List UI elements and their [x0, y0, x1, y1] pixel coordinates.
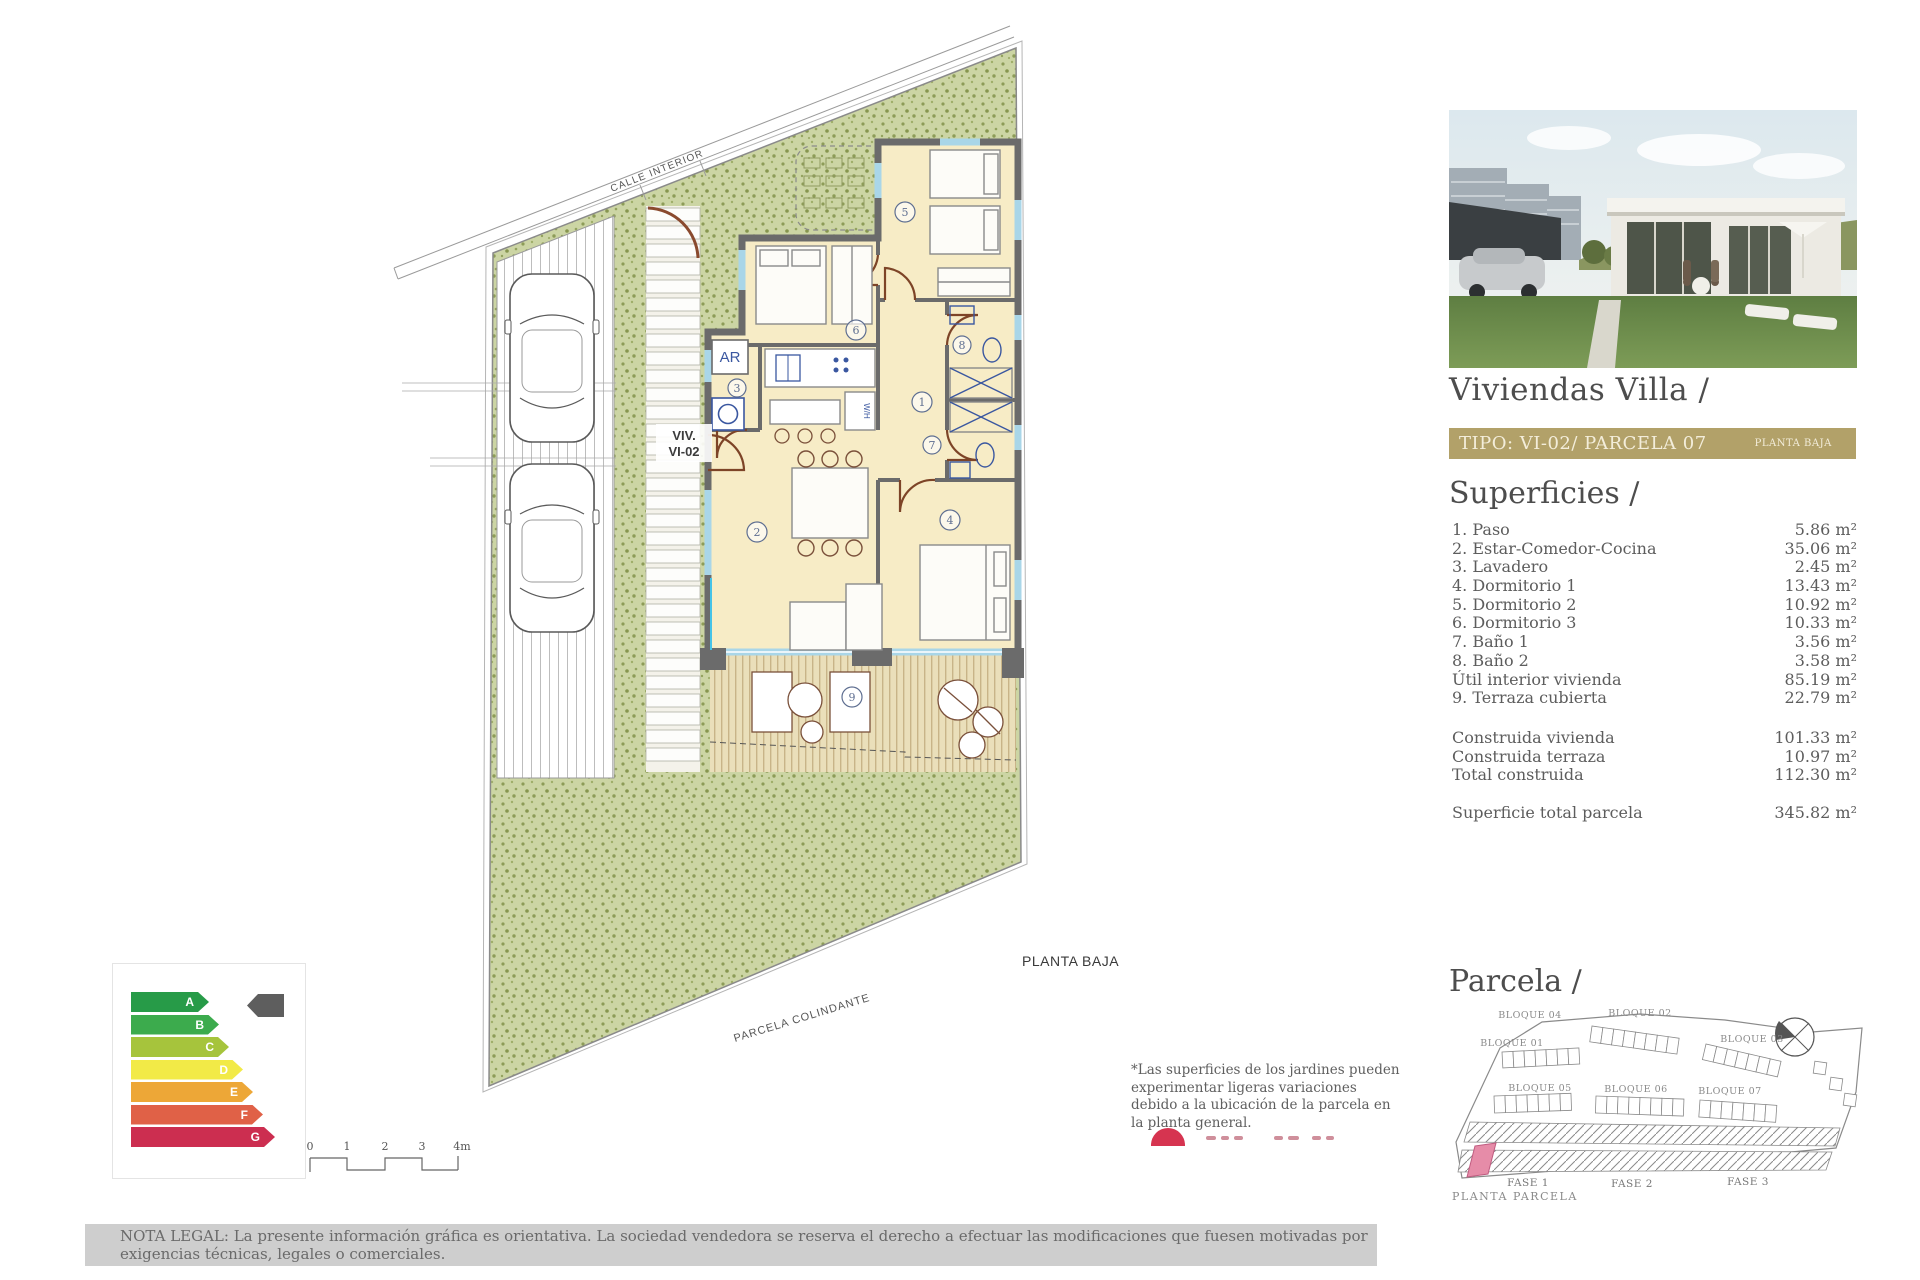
energy-rating-chart: A B C D E F G	[112, 963, 306, 1179]
bedroom3-furniture	[756, 246, 872, 324]
type-bar-floor: PLANTA BAJA	[1755, 438, 1832, 449]
site-plan: BLOQUE 04 BLOQUE 02 BLOQUE 01 BLOQUE 03 …	[1456, 1008, 1862, 1190]
svg-text:3: 3	[419, 1140, 426, 1153]
ar-label: AR	[720, 349, 741, 366]
svg-text:3: 3	[734, 382, 741, 395]
wh-label: W/H	[862, 403, 871, 419]
parcela-heading: Parcela /	[1449, 964, 1582, 999]
energy-grade-a: A	[131, 992, 209, 1012]
planta-parcela-caption: PLANTA PARCELA	[1452, 1190, 1578, 1203]
table-row: 7. Baño 13.56 m²	[1452, 633, 1857, 652]
villa-photo	[1449, 110, 1857, 368]
energy-grade-b: B	[131, 1015, 219, 1035]
table-row: Superficie total parcela345.82 m²	[1452, 804, 1857, 823]
fase-3-label: FASE 3	[1727, 1176, 1769, 1188]
svg-text:VIV.: VIV.	[672, 428, 695, 443]
jardines-note: *Las superficies de los jardines pueden …	[1131, 1062, 1403, 1132]
bloque-01-label: BLOQUE 01	[1480, 1038, 1543, 1049]
parcel-total-row: Superficie total parcela345.82 m²	[1452, 804, 1857, 823]
table-row: Total construida112.30 m²	[1452, 766, 1857, 785]
energy-grade-c: C	[131, 1037, 229, 1057]
svg-text:9: 9	[849, 691, 856, 704]
plan-sheet: CALLE INTERIOR	[0, 0, 1920, 1280]
table-row: Construida vivienda101.33 m²	[1452, 729, 1857, 748]
type-bar-label: TIPO: VI-02/ PARCELA 07	[1459, 433, 1707, 454]
table-row: 4. Dormitorio 113.43 m²	[1452, 577, 1857, 596]
energy-grade-g: G	[131, 1127, 275, 1147]
table-row: 1. Paso5.86 m²	[1452, 521, 1857, 540]
svg-text:2: 2	[382, 1140, 389, 1153]
legal-note-bar: NOTA LEGAL: La presente información gráf…	[85, 1224, 1377, 1266]
type-bar: TIPO: VI-02/ PARCELA 07 PLANTA BAJA	[1449, 428, 1856, 459]
svg-text:1: 1	[344, 1140, 351, 1153]
bedroom1-furniture	[920, 545, 1010, 640]
table-row: 5. Dormitorio 210.92 m²	[1452, 596, 1857, 615]
table-row: 6. Dormitorio 310.33 m²	[1452, 614, 1857, 633]
scale-bar-labels: 0 1 2 3 4m	[307, 1140, 472, 1153]
svg-text:1: 1	[919, 396, 926, 409]
svg-text:2: 2	[754, 526, 761, 539]
superficies-table: 1. Paso5.86 m² 2. Estar-Comedor-Cocina35…	[1452, 521, 1857, 708]
svg-text:0: 0	[307, 1140, 314, 1153]
table-row: 8. Baño 23.58 m²	[1452, 652, 1857, 671]
page-title: Viviendas Villa /	[1449, 372, 1859, 408]
terrace-deck	[710, 655, 1016, 772]
boundary-label: PARCELA COLINDANTE	[732, 992, 871, 1045]
table-row: 3. Lavadero2.45 m²	[1452, 558, 1857, 577]
table-row: Útil interior vivienda85.19 m²	[1452, 671, 1857, 690]
superficies-totals: Construida vivienda101.33 m² Construida …	[1452, 729, 1857, 785]
table-row: Construida terraza10.97 m²	[1452, 748, 1857, 767]
svg-text:5: 5	[902, 206, 909, 219]
energy-grade-bars: A B C D E F G	[131, 992, 275, 1150]
bloque-06-label: BLOQUE 06	[1604, 1084, 1667, 1095]
cut-legend-text	[1206, 1136, 1216, 1140]
legal-note-text: NOTA LEGAL: La presente información gráf…	[120, 1227, 1377, 1263]
svg-text:7: 7	[929, 439, 936, 452]
carport	[402, 216, 616, 778]
walkway	[646, 206, 700, 772]
table-row: 9. Terraza cubierta22.79 m²	[1452, 689, 1857, 708]
svg-text:4: 4	[947, 514, 954, 527]
car-top-view	[505, 274, 599, 442]
energy-grade-e: E	[131, 1082, 253, 1102]
bloque-03-label: BLOQUE 03	[1720, 1034, 1783, 1045]
svg-text:8: 8	[959, 339, 966, 352]
energy-grade-d: D	[131, 1060, 243, 1080]
svg-text:4m: 4m	[453, 1140, 471, 1153]
fase-2-label: FASE 2	[1611, 1178, 1653, 1190]
bedroom2-furniture	[930, 150, 1010, 296]
superficies-heading: Superficies /	[1449, 476, 1639, 511]
svg-text:6: 6	[853, 324, 860, 337]
bloque-07-label: BLOQUE 07	[1698, 1086, 1761, 1097]
plan-floor-caption: PLANTA BAJA	[1022, 953, 1119, 969]
table-row: 2. Estar-Comedor-Cocina35.06 m²	[1452, 540, 1857, 559]
fase-1-label: FASE 1	[1507, 1177, 1549, 1189]
scale-bar	[310, 1156, 458, 1172]
unit-label: VIV. VI-02	[656, 424, 712, 462]
car-top-view	[505, 464, 599, 632]
svg-text:VI-02: VI-02	[668, 444, 699, 459]
bloque-04-label: BLOQUE 04	[1498, 1010, 1561, 1021]
energy-grade-f: F	[131, 1105, 263, 1125]
bloque-02-label: BLOQUE 02	[1608, 1008, 1671, 1019]
bloque-05-label: BLOQUE 05	[1508, 1083, 1571, 1094]
